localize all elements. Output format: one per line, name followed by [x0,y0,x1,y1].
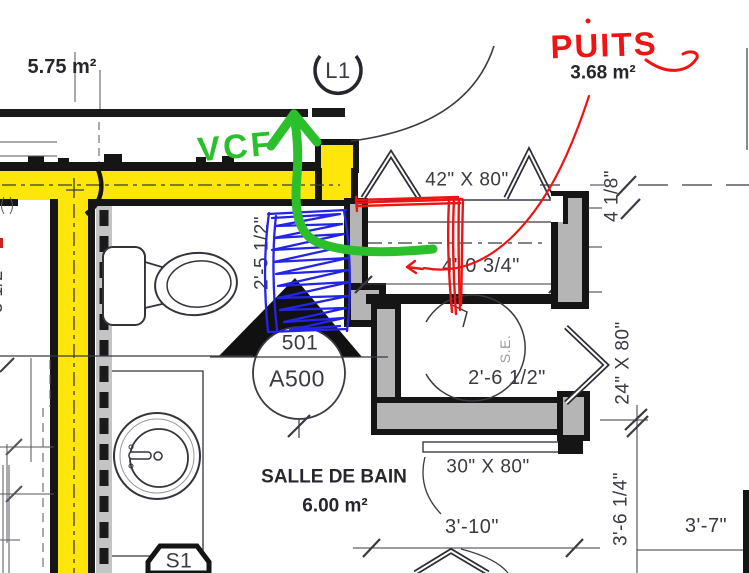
dim-3-7: 3'-7" [685,516,727,536]
top-wall-line [0,108,345,117]
level-tag-text: L1 [325,60,350,82]
right-wall-stub [743,490,749,573]
section-number: 501 [282,333,319,354]
dim-4-1-8: 4 1/8" [603,170,622,222]
door-swing-label: S.E. [498,335,512,363]
aux-lines-bottom-left [0,358,54,573]
room-area: 6.00 m² [302,497,367,516]
dim-door-42x80: 42" X 80" [425,171,509,190]
dim-3-10: 3'-10" [445,517,499,537]
door-arc-top [351,46,494,141]
dim-2-5-1-2: 2'-5 1/2" [253,216,272,290]
handwritten-puits: PUITS [550,27,658,64]
dim-edge-fragment: 5 1/2" [0,263,5,312]
dim-door-30x80: 30" X 80" [446,458,530,477]
yellow-wall-column [315,139,359,206]
section-sheet: A500 [269,368,325,391]
floor-plan-canvas: 5.75 m² L1 3.68 m² 42" X 80" 4 1/8" 2'-5… [0,0,749,573]
room-name: SALLE DE BAIN [261,468,407,487]
well-right-wall [551,191,589,309]
dim-2-6-1-2: 2'-6 1/2" [468,368,546,388]
chevron-door-bottom [415,549,508,573]
handwritten-vcf: VCF [196,127,276,168]
dim-3-6-1-4: 3'-6 1/4" [612,472,631,546]
yellow-wall-vertical [0,199,112,573]
section-tick [0,358,14,372]
yellow-wall-horizontal [0,154,358,206]
dim-door-24x80: 24" X 80" [614,321,633,405]
dim-4-0-3-4: 4'-0 3/4" [442,256,520,276]
fixture-tag-text: S1 [166,551,193,572]
area-label-well: 3.68 m² [570,64,635,83]
sink-counter [112,371,203,556]
area-label-top-left: 5.75 m² [28,57,97,77]
toilet [103,247,240,325]
